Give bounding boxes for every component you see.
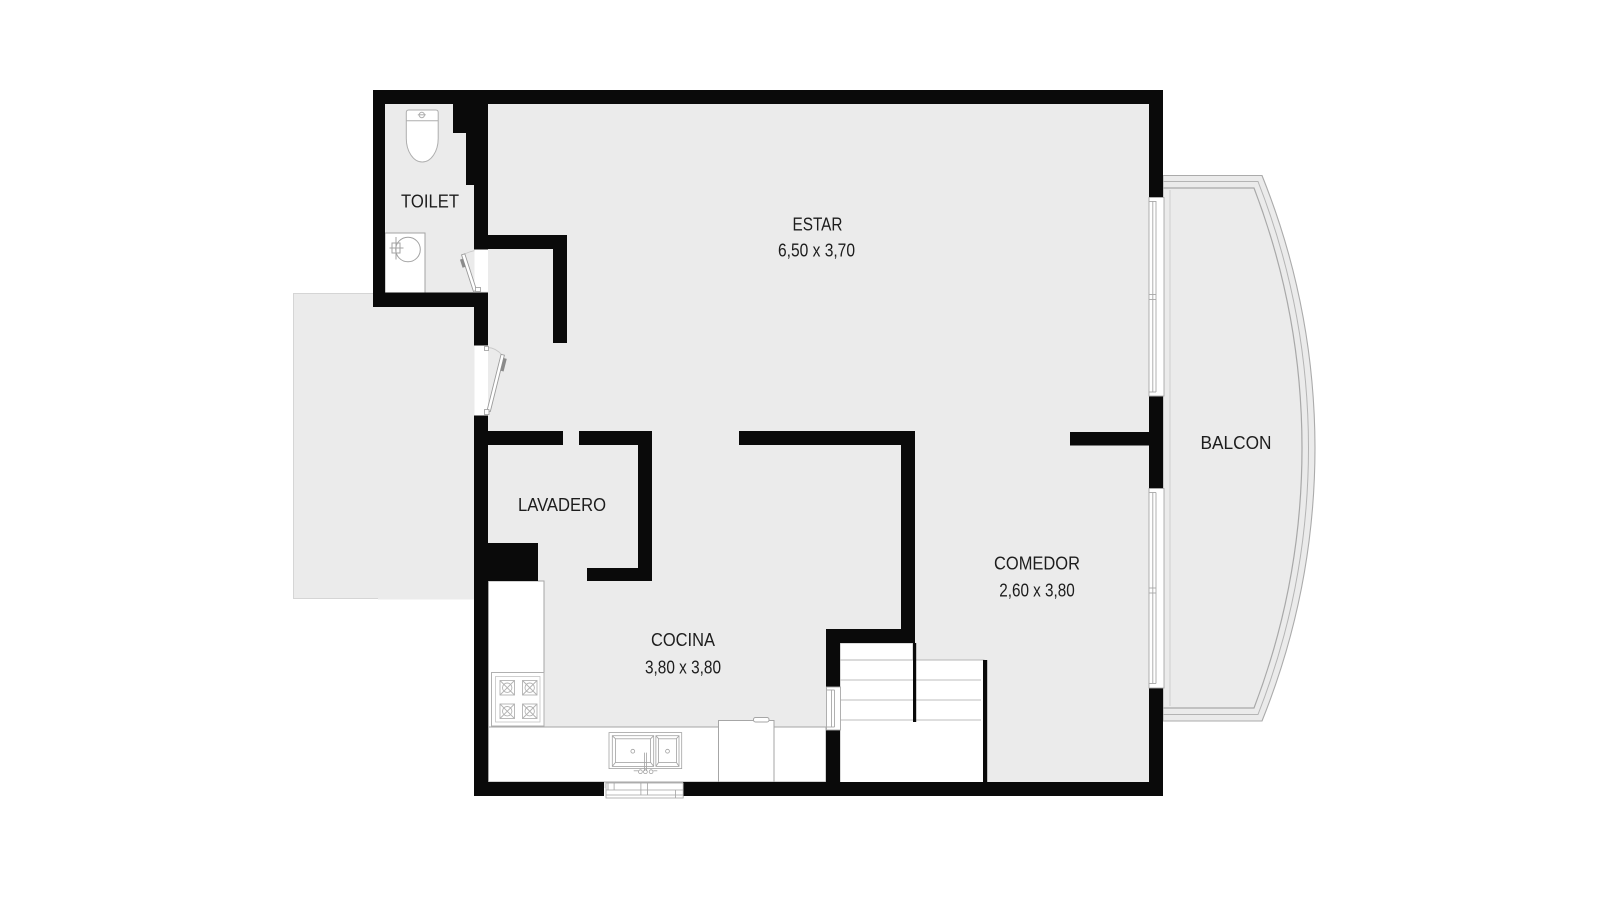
svg-text:LAVADERO: LAVADERO [518, 495, 606, 515]
svg-text:BALCON: BALCON [1201, 433, 1272, 453]
svg-text:6,50 x 3,70: 6,50 x 3,70 [778, 241, 855, 261]
svg-text:2,60 x 3,80: 2,60 x 3,80 [999, 581, 1075, 601]
svg-text:ESTAR: ESTAR [793, 215, 843, 235]
svg-text:COCINA: COCINA [651, 630, 715, 650]
svg-text:TOILET: TOILET [401, 192, 459, 212]
svg-text:3,80 x 3,80: 3,80 x 3,80 [645, 658, 721, 678]
svg-text:COMEDOR: COMEDOR [994, 554, 1080, 574]
